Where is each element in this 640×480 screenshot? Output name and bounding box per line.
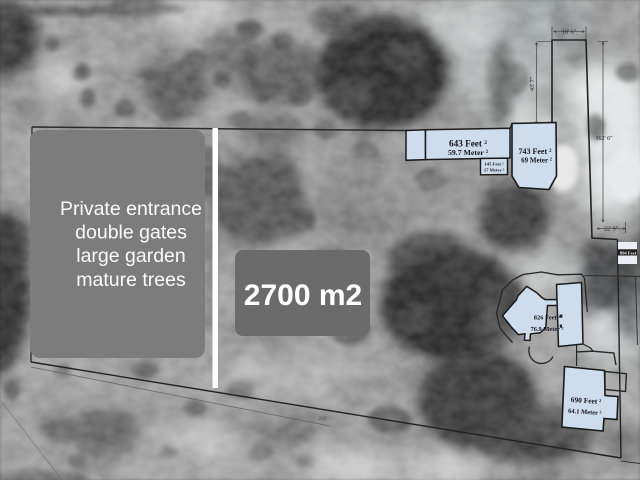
svg-text:145 Feet ²: 145 Feet ² (485, 162, 505, 167)
svg-text:2700 m2: 2700 m2 (244, 279, 362, 312)
svg-text:826 Feet ²: 826 Feet ² (534, 315, 560, 322)
svg-text:643 Feet ²: 643 Feet ² (449, 139, 487, 149)
svg-text:743 Feet ²: 743 Feet ² (518, 147, 552, 156)
svg-text:large garden: large garden (76, 245, 186, 267)
svg-text:18' 6": 18' 6" (562, 30, 577, 36)
svg-text:22' 9": 22' 9" (604, 227, 619, 233)
svg-text:43' 7": 43' 7" (530, 76, 536, 91)
svg-text:162' 6": 162' 6" (595, 136, 613, 142)
svg-text:Private entrance: Private entrance (60, 198, 202, 220)
svg-text:mature trees: mature trees (76, 269, 186, 291)
svg-text:231': 231' (319, 417, 328, 422)
svg-text:76.9 Meter ²: 76.9 Meter ² (531, 326, 564, 333)
svg-text:69 Meter ²: 69 Meter ² (521, 157, 552, 165)
svg-text:59.7 Meter ²: 59.7 Meter ² (448, 148, 489, 157)
svg-text:894 Feet: 894 Feet (620, 250, 637, 255)
svg-text:17 Meter ²: 17 Meter ² (484, 168, 505, 173)
svg-text:double gates: double gates (75, 222, 187, 244)
